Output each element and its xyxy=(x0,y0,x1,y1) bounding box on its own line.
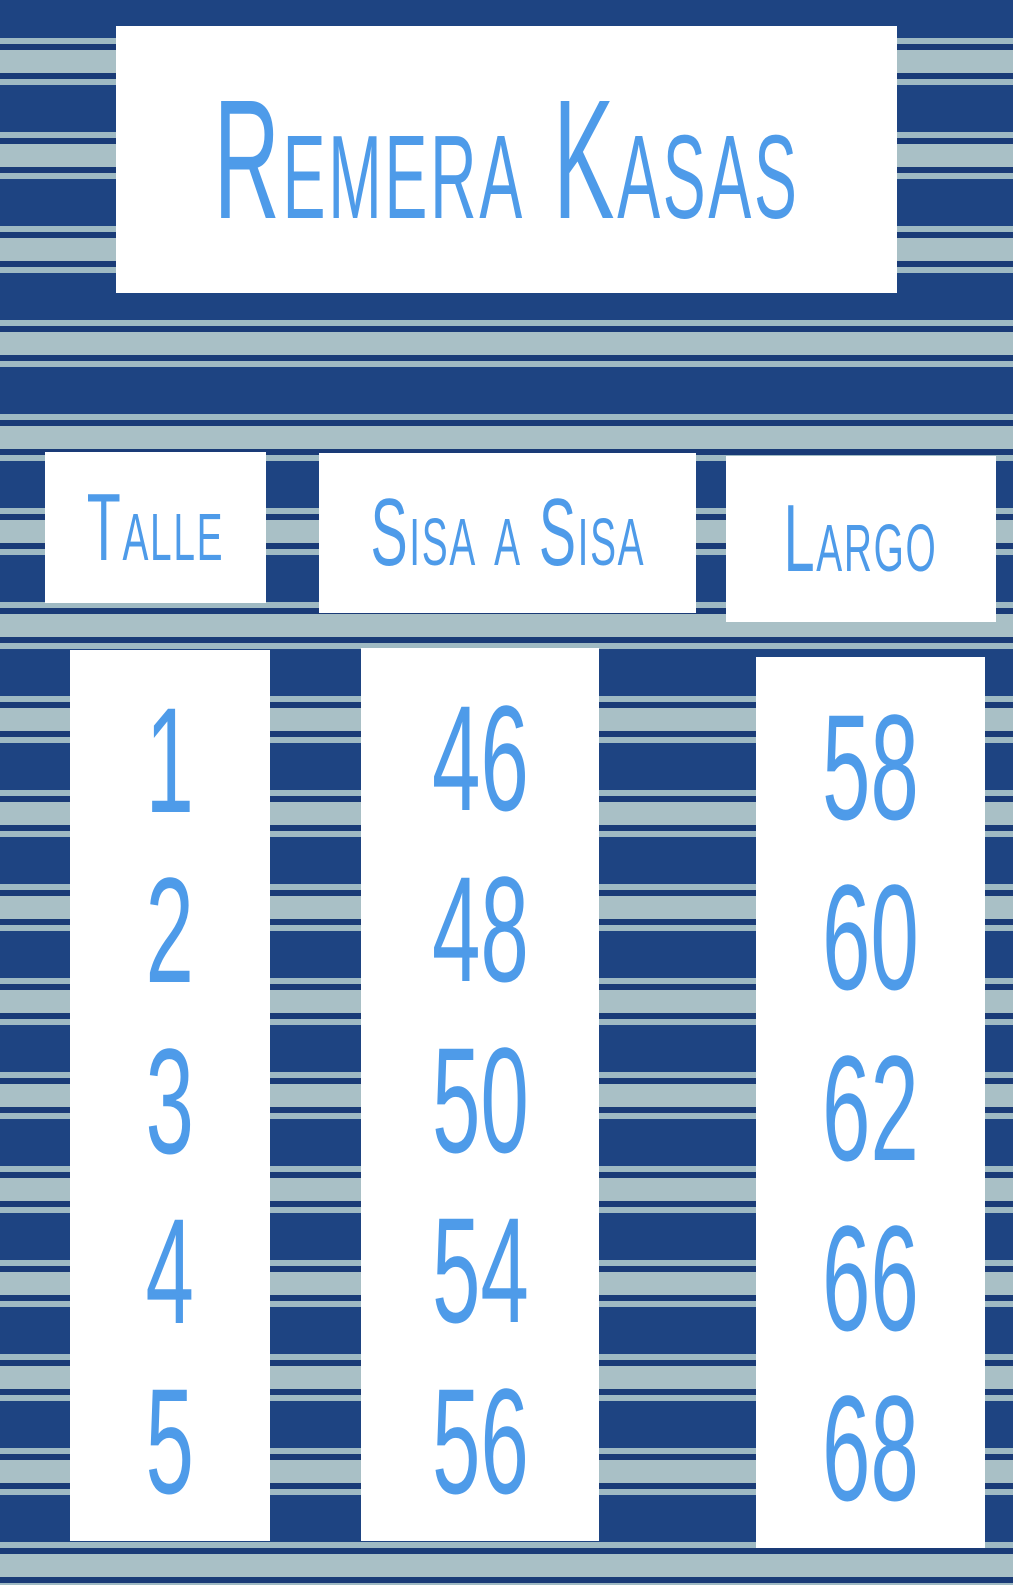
column-sisa-a-sisa-values: 46 48 50 54 56 xyxy=(361,648,599,1541)
column-header-largo-label: Largo xyxy=(784,491,938,587)
table-cell-largo-3: 62 xyxy=(756,1028,985,1188)
value-talle-row3: 3 xyxy=(146,1026,194,1176)
table-cell-largo-2: 60 xyxy=(756,857,985,1017)
value-largo-row4: 66 xyxy=(822,1203,919,1353)
value-sisa-row5: 56 xyxy=(432,1366,529,1516)
value-largo-row2: 60 xyxy=(822,862,919,1012)
table-cell-largo-5: 68 xyxy=(756,1368,985,1528)
table-cell-largo-1: 58 xyxy=(756,687,985,847)
table-cell-talle-1: 1 xyxy=(70,680,270,840)
value-sisa-row4: 54 xyxy=(432,1195,529,1345)
column-header-largo: Largo xyxy=(726,456,996,622)
value-largo-row3: 62 xyxy=(822,1033,919,1183)
table-cell-sisa-4: 54 xyxy=(361,1190,599,1350)
column-header-sisa-a-sisa: Sisa a Sisa xyxy=(319,453,696,613)
value-sisa-row2: 48 xyxy=(432,854,529,1004)
title-panel: Remera Kasas xyxy=(116,26,897,293)
value-talle-row2: 2 xyxy=(146,855,194,1005)
table-cell-sisa-2: 48 xyxy=(361,849,599,1009)
column-largo-values: 58 60 62 66 68 xyxy=(756,657,985,1548)
table-cell-sisa-3: 50 xyxy=(361,1020,599,1180)
value-sisa-row3: 50 xyxy=(432,1025,529,1175)
table-cell-sisa-1: 46 xyxy=(361,678,599,838)
value-largo-row5: 68 xyxy=(822,1373,919,1523)
column-header-talle-label: Talle xyxy=(87,480,224,576)
table-cell-talle-2: 2 xyxy=(70,850,270,1010)
table-cell-talle-4: 4 xyxy=(70,1191,270,1351)
value-talle-row4: 4 xyxy=(146,1196,194,1346)
page-title: Remera Kasas xyxy=(213,75,799,245)
size-chart-background: Remera Kasas Talle Sisa a Sisa Largo 1 2… xyxy=(0,0,1013,1585)
table-cell-talle-5: 5 xyxy=(70,1361,270,1521)
column-header-talle: Talle xyxy=(45,452,266,603)
table-cell-talle-3: 3 xyxy=(70,1021,270,1181)
column-talle-values: 1 2 3 4 5 xyxy=(70,650,270,1541)
value-sisa-row1: 46 xyxy=(432,683,529,833)
value-talle-row5: 5 xyxy=(146,1366,194,1516)
value-largo-row1: 58 xyxy=(822,692,919,842)
column-header-sisa-a-sisa-label: Sisa a Sisa xyxy=(370,485,645,581)
value-talle-row1: 1 xyxy=(146,685,194,835)
table-cell-sisa-5: 56 xyxy=(361,1361,599,1521)
table-cell-largo-4: 66 xyxy=(756,1198,985,1358)
